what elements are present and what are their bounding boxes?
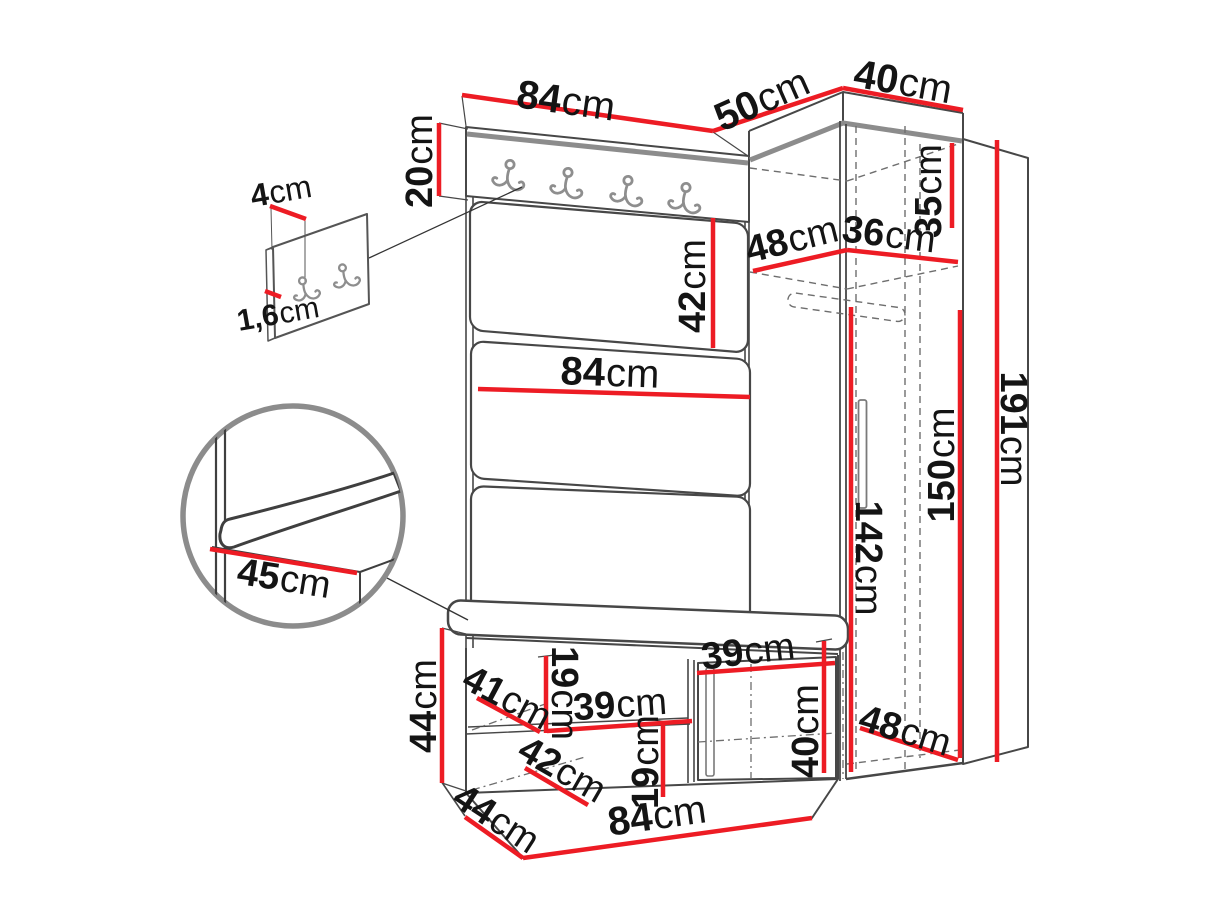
circle-pointer-line	[387, 578, 468, 620]
bench-door-handle	[706, 668, 714, 776]
dim-label-wardrobe-inner-height: 142cm	[847, 500, 889, 615]
wardrobe-door-handle	[859, 400, 867, 508]
dim-label-wardrobe-top-depth: 40cm	[851, 52, 956, 112]
dim-label-wardrobe-door-height: 150cm	[921, 407, 963, 522]
dim-label-hook-board-height: 20cm	[399, 114, 441, 208]
dim-label-top-compartment-height: 35cm	[908, 144, 950, 238]
dim-label-bench-side-depth: 44cm	[445, 776, 547, 862]
dim-label-bench-door-height: 40cm	[785, 684, 827, 778]
dim-label-detail-hook-offset: 4cm	[248, 168, 315, 214]
dim-label-panel-mid-width: 84cm	[560, 349, 660, 396]
dim-label-detail-panel-thickness: 1,6cm	[234, 291, 321, 338]
furniture-dimension-diagram: 84cm50cm40cm20cm4cm1,6cm42cm48cm36cm35cm…	[0, 0, 1214, 910]
dim-label-panel-top-width: 84cm	[514, 72, 618, 129]
dim-label-niche-top-width: 50cm	[708, 60, 816, 140]
dim-label-bench-height: 44cm	[403, 659, 445, 753]
dim-label-total-height: 191cm	[992, 371, 1034, 486]
dim-label-cushion-height: 42cm	[672, 239, 714, 333]
hallway-furniture-drawing: 84cm50cm40cm20cm4cm1,6cm42cm48cm36cm35cm…	[0, 0, 1214, 910]
